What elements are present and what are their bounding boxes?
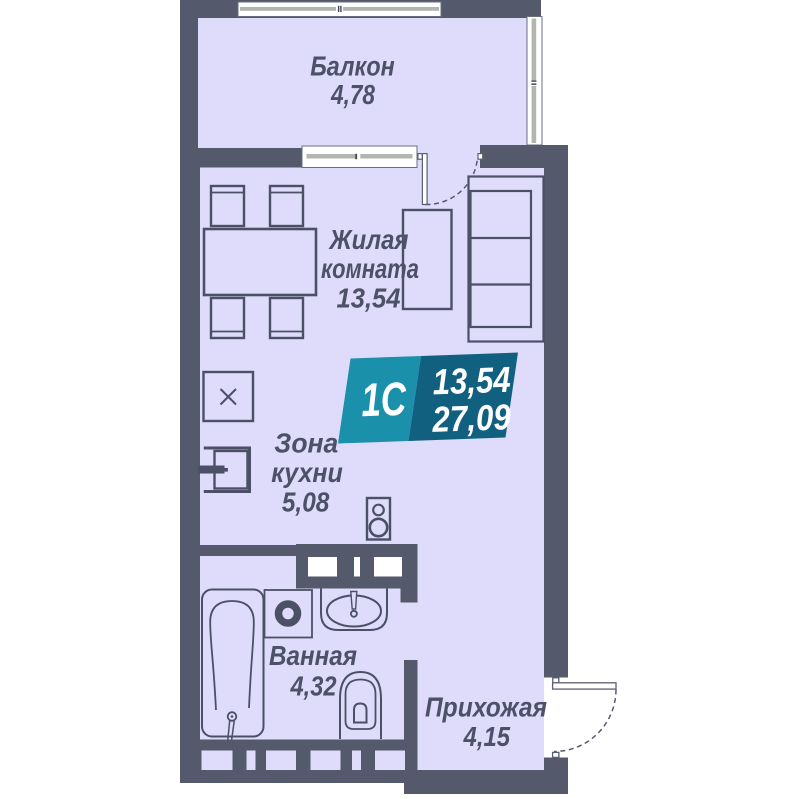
svg-text:4,15: 4,15: [463, 721, 511, 752]
svg-text:Ванная: Ванная: [269, 640, 357, 671]
svg-text:13,54: 13,54: [337, 283, 401, 314]
svg-text:1С: 1С: [360, 372, 408, 427]
svg-text:кухни: кухни: [271, 457, 343, 488]
svg-text:4,32: 4,32: [290, 671, 337, 702]
svg-text:Зона: Зона: [274, 428, 338, 459]
svg-text:Балкон: Балкон: [310, 51, 395, 82]
svg-text:комната: комната: [321, 253, 419, 284]
svg-text:5,08: 5,08: [282, 487, 330, 518]
svg-text:27,09: 27,09: [431, 396, 512, 440]
svg-text:Прихожая: Прихожая: [425, 692, 547, 723]
svg-text:4,78: 4,78: [330, 79, 375, 110]
svg-text:Жилая: Жилая: [328, 224, 409, 255]
